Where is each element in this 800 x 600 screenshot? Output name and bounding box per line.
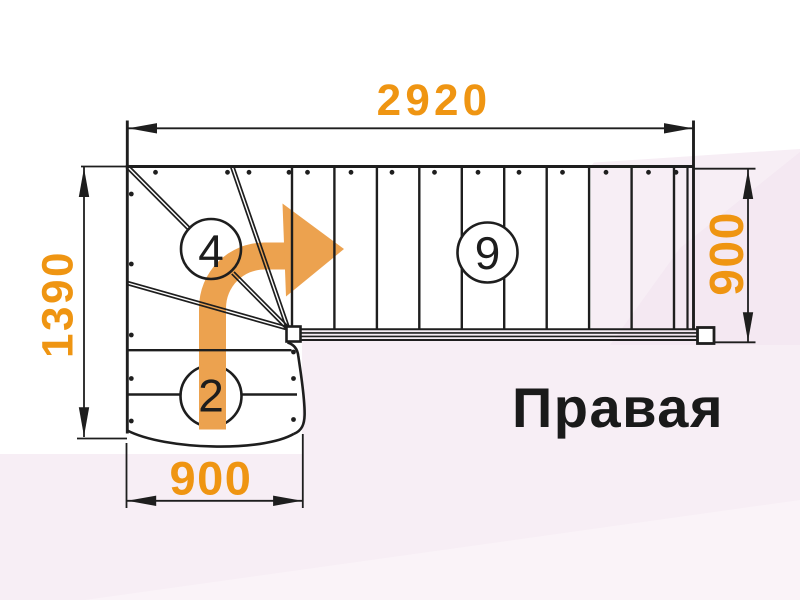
- svg-text:900: 900: [701, 211, 754, 296]
- svg-text:Правая: Правая: [512, 376, 724, 439]
- svg-text:1390: 1390: [34, 250, 83, 358]
- svg-text:2920: 2920: [377, 76, 492, 125]
- svg-text:900: 900: [170, 452, 253, 505]
